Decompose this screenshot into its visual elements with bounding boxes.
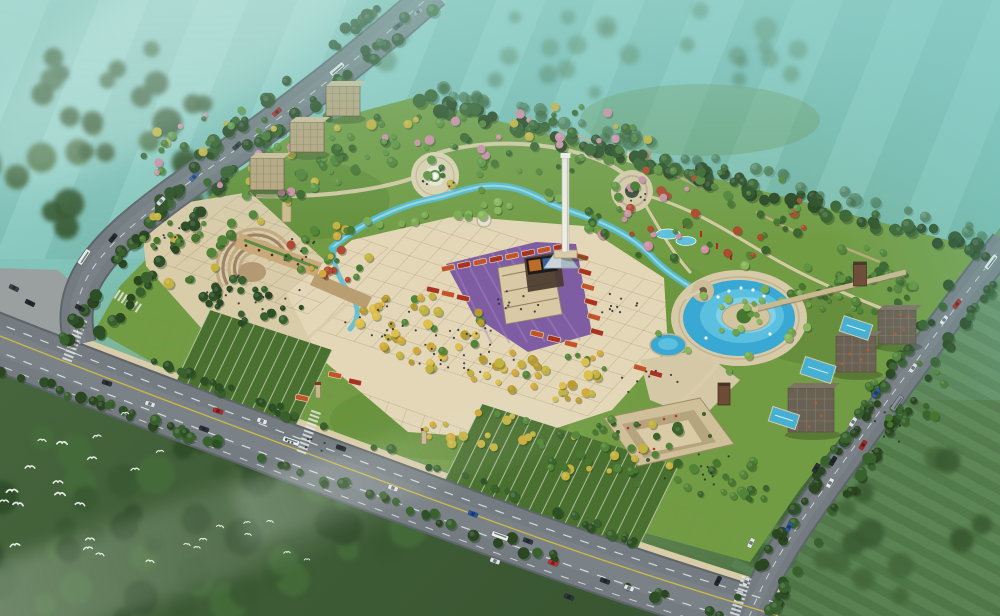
person-dot [609,308,611,310]
tree-crown [635,252,641,258]
tree-highlight [628,540,632,544]
tree-crown [119,249,126,256]
tree-crown [557,60,575,78]
tree-highlight [151,416,156,421]
tree-crown [887,287,892,292]
tree-crown [460,330,469,339]
tree-highlight [444,422,446,424]
tree-highlight [401,13,406,18]
facade-accent [849,353,852,356]
tree-crown [517,360,525,368]
bird [25,466,35,468]
person-dot [513,359,515,361]
tree-crown [754,561,764,571]
tree-highlight [366,254,370,258]
tree-crown [764,166,774,176]
tree-highlight [243,140,248,145]
tree-crown [356,265,363,272]
tree-crown [950,528,972,550]
tree-highlight [272,126,275,129]
tree-crown [946,344,954,352]
tree-crown [413,347,420,354]
tree-highlight [899,280,901,282]
tree-highlight [566,354,569,357]
tree-crown [816,191,824,199]
tree-highlight [667,463,670,466]
bird-wings [267,520,274,522]
tree-crown [268,404,276,412]
tree-crown [181,371,188,378]
tree-highlight [684,484,688,488]
tree-highlight [418,295,421,298]
tree-highlight [559,118,565,124]
tree-crown [810,483,819,492]
tree-crown [727,200,734,207]
tree-highlight [90,397,94,401]
tree-highlight [510,414,513,417]
tree-highlight [229,123,232,126]
tree-crown [350,19,358,27]
tree-highlight [579,155,582,158]
tree-crown [723,249,731,257]
tree-highlight [869,402,872,405]
tree-highlight [841,187,846,192]
tree-crown [334,43,341,50]
tree-highlight [586,208,590,212]
tree-highlight [583,522,586,525]
tree-crown [691,209,700,218]
tree-crown [572,110,578,116]
tree-highlight [325,267,329,271]
tree-highlight [447,434,451,438]
tree-crown [613,464,622,473]
tree-crown [141,272,152,283]
tree-crown [697,168,706,177]
person-dot [433,353,435,355]
tree-crown [60,572,93,605]
tree-highlight [760,298,763,301]
tree-highlight [837,293,840,296]
tree-crown [479,355,487,363]
tree-crown [425,135,435,145]
tree-highlight [580,143,584,147]
tree-crown [47,379,56,388]
tree-crown [653,433,660,440]
tree-crown [820,456,831,467]
person-dot [305,446,307,448]
tree-highlight [634,422,637,425]
tree-highlight [549,458,553,462]
tree-crown [229,234,235,240]
tree-crown [761,246,770,255]
bird [83,547,92,550]
bird [96,553,104,556]
tree-crown [692,2,709,19]
tree-crown [391,329,399,337]
tree-highlight [820,306,823,309]
tree-highlight [69,315,74,320]
tree-highlight [335,125,338,128]
tree-highlight [275,144,278,147]
person-dot [520,308,522,310]
tree-crown [256,128,261,133]
tree-crown [644,135,653,144]
tree-crown [413,94,427,108]
person-dot [507,305,509,307]
tree-highlight [852,298,856,302]
tree-crown [363,217,371,225]
tree-highlight [748,462,752,466]
facade-accent [820,415,823,418]
tree-crown [567,380,576,389]
facade-accent [907,315,910,318]
fountain-jet-dot [751,288,754,291]
tree-highlight [649,421,653,425]
tree-crown [143,41,159,57]
tree-highlight [747,191,749,193]
tree-crown [115,313,125,323]
tree-highlight [230,276,234,280]
tree-crown [216,299,223,306]
bird-wings [184,543,191,546]
fountain-jet-dot [739,286,742,289]
person-dot [384,334,386,336]
tree-crown [471,376,477,382]
facade-accent [894,333,897,336]
tree-crown [614,193,623,202]
tree-crown [576,450,585,459]
tree-highlight [550,551,554,555]
person-dot [467,369,469,371]
tree-highlight [280,316,284,320]
tree-highlight [611,452,615,456]
tree-highlight [367,491,371,495]
tree-highlight [762,233,764,235]
tree-crown [152,127,162,137]
aerial-park-rendering [0,0,1000,616]
tree-crown [274,410,280,416]
tree-crown [938,302,946,310]
tree-crown [126,413,134,421]
tree-crown [474,308,482,316]
tree-crown [653,165,662,174]
person-dot [469,335,471,337]
tree-crown [0,151,1,181]
tree-crown [560,462,567,469]
tree-crown [153,237,160,244]
tree-crown [500,47,518,65]
person-dot [424,344,426,346]
person-dot [534,310,536,312]
tree-crown [803,323,811,331]
tree-highlight [461,104,467,110]
person-dot [627,391,629,393]
person-dot [448,185,450,187]
tree-highlight [789,505,794,510]
tree-crown [839,499,856,516]
tree-crown [536,168,542,174]
tree-highlight [743,299,745,301]
tree-crown [552,508,562,518]
tree-crown [596,138,601,143]
tree-highlight [388,158,392,162]
tree-crown [145,536,163,554]
tree-crown [350,165,359,174]
person-dot [323,442,325,444]
tree-crown [930,411,939,420]
tree-crown [630,181,640,191]
tree-highlight [202,117,204,119]
tree-crown [127,294,136,303]
tree-highlight [263,96,268,101]
tree-crown [320,422,328,430]
bird [199,538,206,540]
person-dot [453,337,455,339]
person-dot [855,428,857,430]
tree-highlight [339,479,344,484]
tree-crown [556,141,563,148]
tree-highlight [435,308,439,312]
tree-crown [460,133,469,142]
tree-crown [743,304,751,312]
tree-highlight [512,370,515,373]
tree-highlight [772,602,777,607]
tree-highlight [448,181,452,185]
tree-crown [930,357,939,366]
tree-highlight [628,467,632,471]
bird-wings [194,546,200,548]
red-banner [716,243,718,249]
tree-crown [774,592,781,599]
tree-crown [365,154,370,159]
tree-highlight [602,367,604,369]
tree-crown [966,312,974,320]
tree-crown [238,276,247,285]
tree-crown [638,443,648,453]
tree-crown [371,444,378,451]
person-dot [306,241,308,243]
tree-crown [712,459,720,467]
person-dot [180,240,182,242]
tree-crown [574,157,580,163]
facade-accent [902,329,905,332]
tree-crown [119,406,128,415]
tree-highlight [675,427,679,431]
tree-crown [78,143,94,159]
red-banner [700,231,702,237]
tree-crown [277,403,284,410]
tree-crown [90,289,102,301]
tree-crown [158,147,164,153]
tree-highlight [893,353,897,357]
facade-accent [808,425,811,428]
tree-crown [894,298,902,306]
bird [53,481,63,483]
tree-highlight [311,184,315,188]
building-roof [878,305,922,310]
tree-highlight [598,351,601,354]
tree-highlight [259,400,263,404]
tree-highlight [202,222,204,224]
tree-highlight [740,178,744,182]
tree-crown [728,47,746,65]
tree-highlight [436,120,440,124]
tree-highlight [749,180,754,185]
pylon-cap [718,383,730,386]
tree-crown [57,434,93,470]
tree-crown [229,575,262,608]
person-dot [475,332,477,334]
tree-highlight [414,117,417,120]
person-dot [616,306,618,308]
tree-crown [107,464,141,498]
person-dot [146,233,148,235]
tree-highlight [558,432,561,435]
tree-crown [462,472,469,479]
tree-highlight [526,133,530,137]
tree-highlight [190,221,195,226]
bird [87,457,96,460]
tree-crown [406,507,415,516]
building-roof [326,81,366,86]
bird-wings [156,450,163,452]
tree-crown [56,518,77,539]
person-dot [386,305,388,307]
tree-highlight [673,230,675,232]
court-flower-box [653,448,656,451]
tree-highlight [397,352,400,355]
tree-crown [60,107,80,127]
tree-crown [334,258,339,263]
person-dot [359,316,361,318]
person-dot [480,353,482,355]
tree-highlight [437,521,440,524]
tree-crown [491,484,499,492]
tree-highlight [377,39,381,43]
tree-crown [0,481,18,514]
person-dot [435,334,437,336]
tree-highlight [200,148,204,152]
tree-highlight [872,380,875,383]
tree-highlight [165,279,170,284]
tree-crown [541,39,559,57]
tree-crown [475,409,482,416]
tree-crown [211,263,219,271]
tree-crown [585,459,592,466]
tree-highlight [375,304,379,308]
tree-crown [181,504,211,534]
tree-highlight [152,359,155,362]
tree-highlight [507,151,510,154]
tree-crown [224,518,262,556]
person-dot [238,275,240,277]
tree-highlight [211,380,214,383]
tree-highlight [151,243,153,245]
tree-crown [797,198,802,203]
tree-highlight [627,205,631,209]
tree-crown [684,347,691,354]
person-dot [489,344,491,346]
person-dot [268,295,270,297]
tree-highlight [746,352,750,356]
tree-crown [551,103,560,112]
tree-highlight [346,278,349,281]
person-dot [857,430,859,432]
tree-crown [924,374,931,381]
person-dot [155,247,157,249]
tree-crown [792,566,802,576]
tree-crown [754,17,777,40]
tree-highlight [405,121,409,125]
tree-highlight [439,165,442,168]
tree-highlight [902,419,906,423]
tree-crown [99,72,115,88]
tree-highlight [985,287,988,290]
tree-highlight [176,239,180,243]
person-dot [431,348,433,350]
tree-highlight [797,184,802,189]
tree-highlight [896,227,900,231]
person-dot [498,303,500,305]
tree-crown [852,567,875,590]
tree-highlight [797,291,800,294]
tree-crown [183,94,202,113]
tree-crown [559,382,566,389]
tree-highlight [966,246,971,251]
tree-crown [943,280,954,291]
tree-highlight [831,446,835,450]
gallery-arch [271,254,274,257]
person-dot [228,290,230,292]
tree-crown [627,444,635,452]
tree-crown [269,546,299,576]
tree-highlight [57,387,61,391]
tree-highlight [530,121,534,125]
tree-crown [753,312,759,318]
tree-crown [659,194,667,202]
tree-crown [763,485,769,491]
tree-highlight [258,218,261,221]
bird [267,520,274,522]
tree-crown [615,146,623,154]
tree-highlight [873,211,877,215]
court-flower-box [663,418,666,421]
tree-crown [544,188,552,196]
tree-crown [319,270,327,278]
tree-crown [504,488,510,494]
tree-highlight [671,168,674,171]
person-dot [713,483,715,485]
tree-crown [530,142,539,151]
tree-crown [464,213,472,221]
tree-highlight [990,282,993,285]
tree-crown [154,158,163,167]
person-dot [178,227,180,229]
tree-highlight [738,326,741,329]
tree-crown [893,284,901,292]
tree-crown [260,312,269,321]
tree-crown [477,145,486,154]
person-dot [610,305,612,307]
tree-crown [508,537,516,545]
person-dot [291,442,293,444]
facade-accent [815,402,818,405]
tree-highlight [982,253,986,257]
tree-crown [779,176,786,183]
tree-crown [682,218,692,228]
tree-highlight [750,458,754,462]
tree-crown [552,396,558,402]
